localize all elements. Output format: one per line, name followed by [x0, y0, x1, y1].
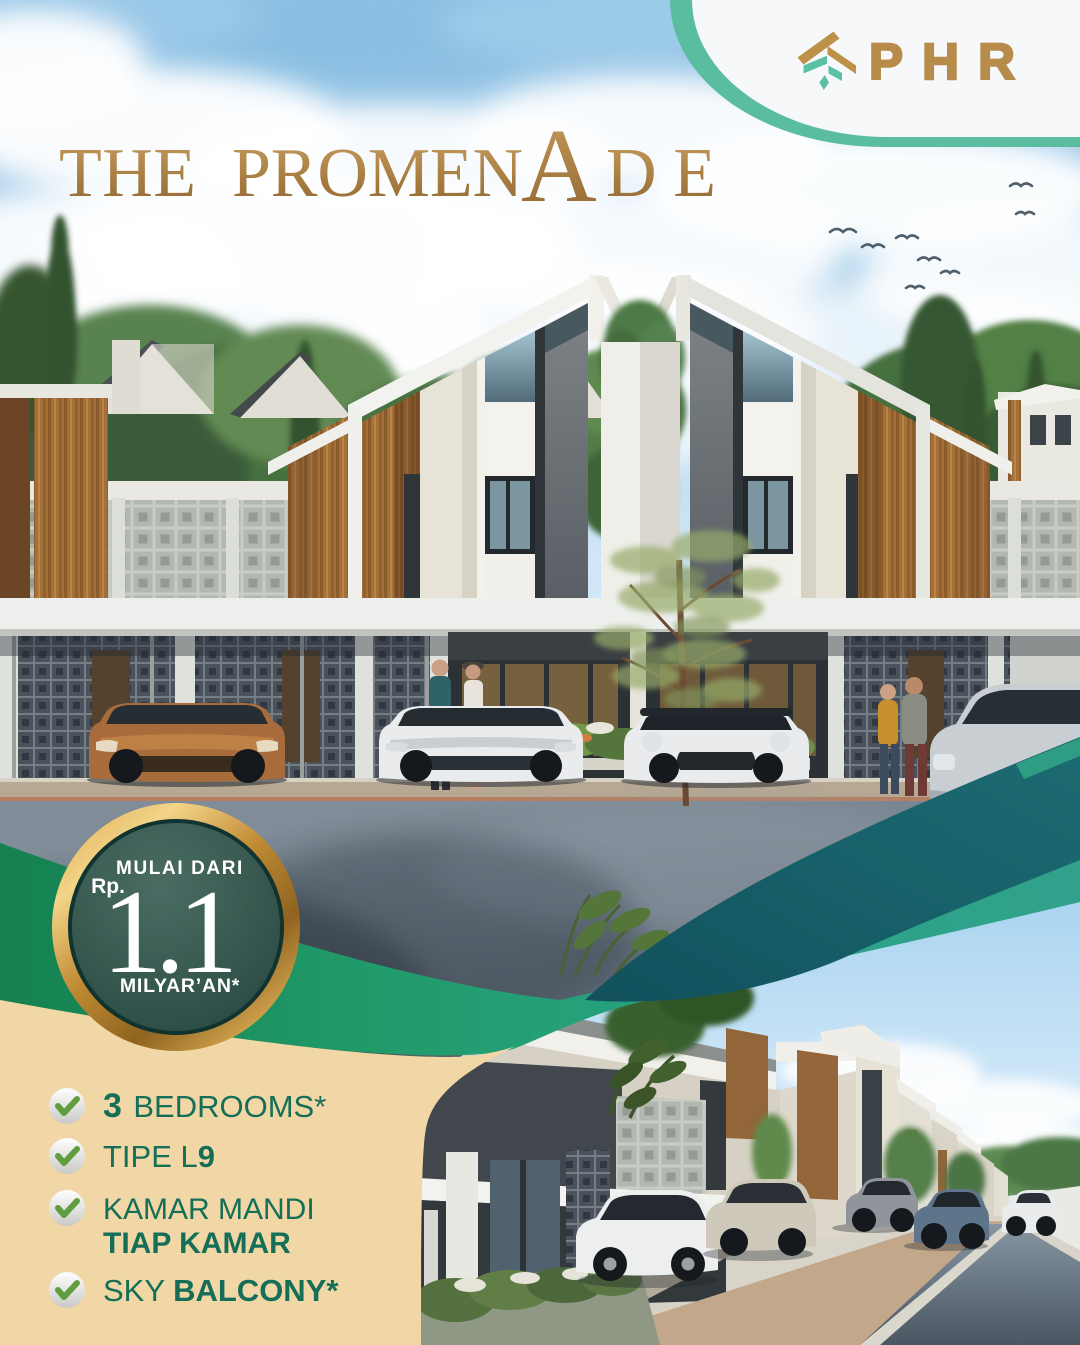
- svg-text:THE: THE: [59, 135, 196, 212]
- svg-text:TIPE L9: TIPE L9: [103, 1139, 215, 1174]
- svg-text:KAMAR MANDI: KAMAR MANDI: [103, 1193, 315, 1226]
- svg-text:PROMEN: PROMEN: [232, 135, 523, 212]
- svg-text:PHR: PHR: [869, 33, 1015, 90]
- svg-text:3 BEDROOMS*: 3 BEDROOMS*: [103, 1087, 326, 1125]
- svg-text:A: A: [521, 107, 597, 224]
- svg-text:TIAP KAMAR: TIAP KAMAR: [103, 1227, 291, 1260]
- svg-text:MILYAR’AN*: MILYAR’AN*: [120, 975, 240, 997]
- svg-text:SKY BALCONY*: SKY BALCONY*: [103, 1273, 339, 1308]
